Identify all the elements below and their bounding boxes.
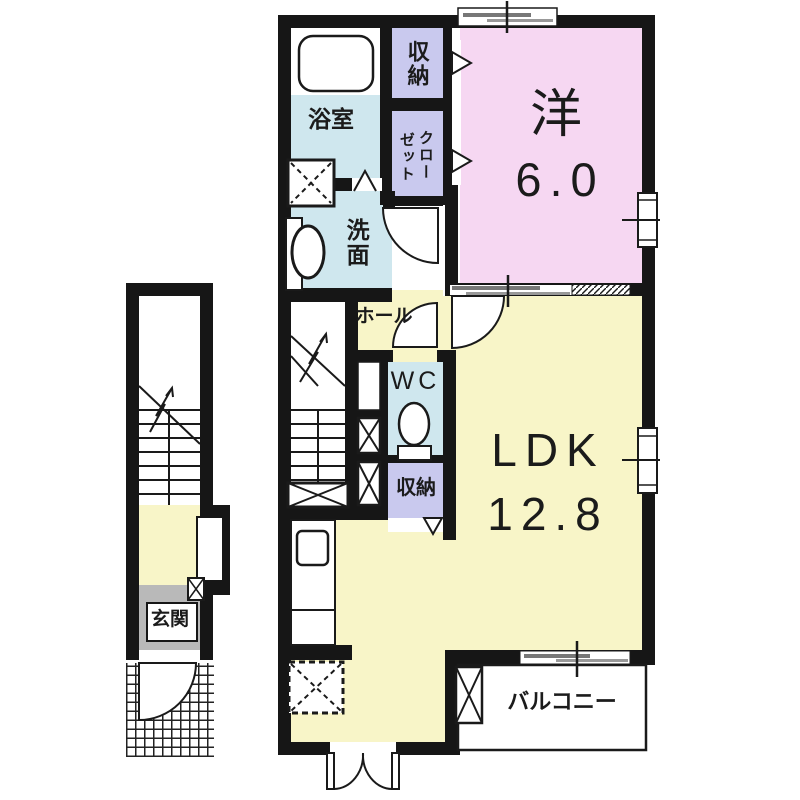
label-storage-mid: 収納 <box>389 475 443 501</box>
label-storage-top: 収納 <box>400 33 434 95</box>
window-right-upper <box>622 193 660 247</box>
kitchen-counter-icon <box>291 520 335 645</box>
label-closet-col1: クロー <box>415 118 435 192</box>
window-top <box>458 1 557 33</box>
label-wc: WC <box>388 366 443 396</box>
stairs-tower <box>139 386 200 505</box>
fridge-space-icon <box>289 662 343 713</box>
label-ldk-area: 12.8 <box>462 486 634 542</box>
bathtub-icon <box>299 36 373 91</box>
double-door-icon <box>327 753 399 789</box>
washer-pan-icon <box>288 160 334 206</box>
closet-sliding-door-icon <box>452 40 471 185</box>
stair-x-box <box>288 483 348 507</box>
label-closet-col2: ゼット <box>396 120 416 194</box>
storage-door-icon <box>424 518 442 534</box>
pipe-shaft-icons <box>358 362 380 505</box>
washroom-door-arc <box>383 208 438 263</box>
label-washroom: 洗面 <box>340 200 372 286</box>
label-western-area: 6.0 <box>500 152 620 208</box>
label-bathroom: 浴室 <box>300 105 362 133</box>
label-western-room: 洋 <box>520 85 600 145</box>
floor-plan: 収納 クロー ゼット 浴室 洗面 洋 6.0 ホール WC 収納 LDK 12.… <box>0 0 800 800</box>
label-hall: ホール <box>348 305 420 329</box>
bath-door-icon <box>354 171 376 191</box>
toilet-icon <box>398 403 431 460</box>
ldk-door-arc <box>452 296 504 348</box>
label-ldk: LDK <box>468 422 628 478</box>
label-entrance: 玄関 <box>146 604 194 636</box>
washbasin-icon <box>286 218 324 290</box>
entrance-door-arc <box>139 663 196 720</box>
label-balcony: バルコニー <box>492 688 632 716</box>
tower-x-box <box>188 578 204 600</box>
